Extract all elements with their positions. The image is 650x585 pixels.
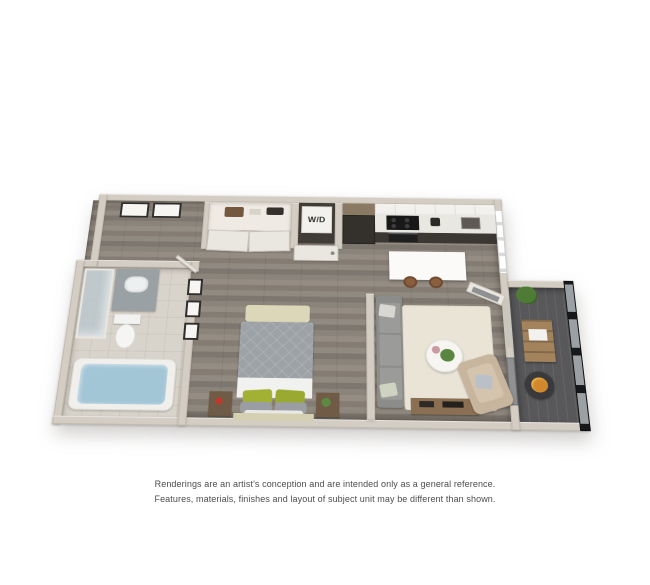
kitchen-sink	[461, 217, 481, 229]
disclaimer-line-2: Features, materials, finishes and layout…	[0, 492, 650, 507]
closet-item-book	[249, 209, 261, 215]
bed-blanket	[238, 322, 314, 381]
disclaimer-line-1: Renderings are an artist's conception an…	[0, 477, 650, 492]
entry-door-handle	[331, 251, 335, 255]
coffee-maker	[430, 218, 440, 227]
kitchen-island	[389, 251, 467, 280]
bedroom-frame-1	[187, 279, 203, 295]
entry-artwork-2	[152, 203, 182, 218]
closet-door-right	[248, 231, 290, 252]
cooktop-burner-1	[391, 218, 396, 222]
closet-item-shoes	[266, 207, 283, 215]
console-item-1	[419, 401, 434, 407]
console-item-2	[442, 401, 463, 407]
vanity-sink	[124, 276, 150, 293]
wd-label: W/D	[302, 207, 331, 233]
stool-2	[429, 276, 443, 288]
cooktop-burner-3	[391, 224, 396, 228]
partition-wall	[366, 294, 375, 420]
entry-artwork-1	[119, 202, 149, 217]
coffee-table-mug	[432, 346, 441, 354]
closet-item-bag	[224, 207, 244, 217]
disclaimer-text: Renderings are an artist's conception an…	[0, 477, 650, 507]
oven-front	[389, 232, 418, 242]
balcony-plant	[515, 286, 536, 303]
coffee-table-plant	[440, 349, 455, 362]
stool-1	[403, 276, 417, 288]
sofa-pillow-bottom	[379, 382, 398, 397]
washer-dryer: W/D	[301, 206, 332, 233]
nightstand-plant	[321, 398, 331, 407]
sofa-pillow-top	[378, 304, 396, 318]
closet-door-left	[206, 229, 250, 251]
bed-bench	[245, 305, 310, 323]
closet-shelf	[208, 202, 292, 231]
toilet-tank	[114, 314, 141, 324]
kitchen-cabinet-tall	[342, 215, 375, 244]
balcony-ladder-shelf	[521, 320, 556, 362]
bathtub-water	[76, 364, 168, 405]
bathroom-wall-top	[97, 260, 192, 268]
cooktop-burner-2	[405, 218, 410, 222]
bedroom-frame-2	[185, 300, 201, 317]
bed-headboard	[233, 413, 314, 421]
cooktop-burner-4	[405, 224, 410, 228]
sofa-cushion-2	[379, 335, 401, 366]
kitchen-cabinet-wood	[343, 203, 375, 215]
balcony-shelf-towel	[528, 329, 547, 341]
apartment-3d-plan: W/D	[52, 194, 595, 432]
armchair-pillow	[476, 374, 493, 389]
bedroom-frame-3	[183, 323, 200, 340]
floorplan-rendering: W/D	[70, 180, 580, 430]
